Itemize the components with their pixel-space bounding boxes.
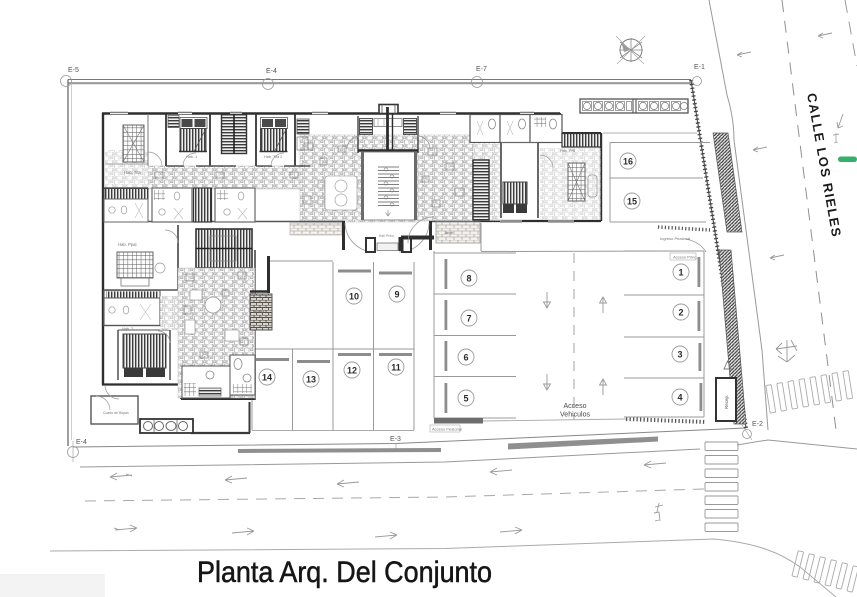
svg-text:3: 3 [677, 350, 682, 360]
svg-text:9: 9 [394, 290, 399, 300]
svg-text:E-7: E-7 [476, 66, 487, 73]
svg-text:E-4: E-4 [266, 68, 277, 75]
svg-text:1: 1 [678, 268, 683, 278]
svg-text:Vehiculos: Vehiculos [560, 412, 590, 419]
svg-text:E-4: E-4 [76, 439, 87, 446]
svg-text:15: 15 [627, 197, 637, 207]
svg-text:E-1: E-1 [694, 64, 705, 71]
svg-text:E-5: E-5 [68, 67, 79, 74]
svg-text:Planta Arq. Del Conjunto: Planta Arq. Del Conjunto [197, 556, 492, 589]
svg-text:Cuarto de Ropas: Cuarto de Ropas [103, 411, 129, 415]
svg-text:Acceso Princ.: Acceso Princ. [673, 255, 697, 260]
svg-text:E-2: E-2 [752, 421, 763, 428]
svg-text:11: 11 [391, 363, 401, 373]
svg-text:4: 4 [677, 393, 682, 403]
svg-text:Hab. Tita: Hab. Tita [124, 170, 141, 175]
svg-text:14: 14 [262, 373, 272, 383]
svg-text:2: 2 [678, 308, 683, 318]
svg-text:6: 6 [463, 353, 468, 363]
svg-text:Recep.: Recep. [724, 395, 729, 409]
svg-text:Acceso Peatonal: Acceso Peatonal [432, 427, 462, 432]
svg-text:Hab. Ppal.: Hab. Ppal. [118, 242, 138, 247]
svg-text:Hab. 3: Hab. 3 [122, 327, 133, 331]
svg-text:7: 7 [466, 314, 471, 324]
svg-text:8: 8 [466, 274, 471, 284]
svg-text:Jardin: Jardin [444, 231, 453, 235]
svg-text:Ingreso Peatonal: Ingreso Peatonal [660, 236, 690, 241]
svg-text:Hall Princ.: Hall Princ. [379, 234, 395, 238]
svg-text:13: 13 [306, 375, 316, 385]
svg-text:16: 16 [623, 157, 633, 167]
svg-text:Terraza: Terraza [253, 310, 264, 314]
svg-text:Acceso: Acceso [564, 403, 587, 410]
svg-text:10: 10 [349, 292, 359, 302]
svg-text:Hab. P/B: Hab. P/B [560, 149, 576, 153]
svg-text:E-3: E-3 [390, 436, 401, 443]
svg-text:5: 5 [463, 394, 468, 404]
svg-text:12: 12 [347, 366, 357, 376]
